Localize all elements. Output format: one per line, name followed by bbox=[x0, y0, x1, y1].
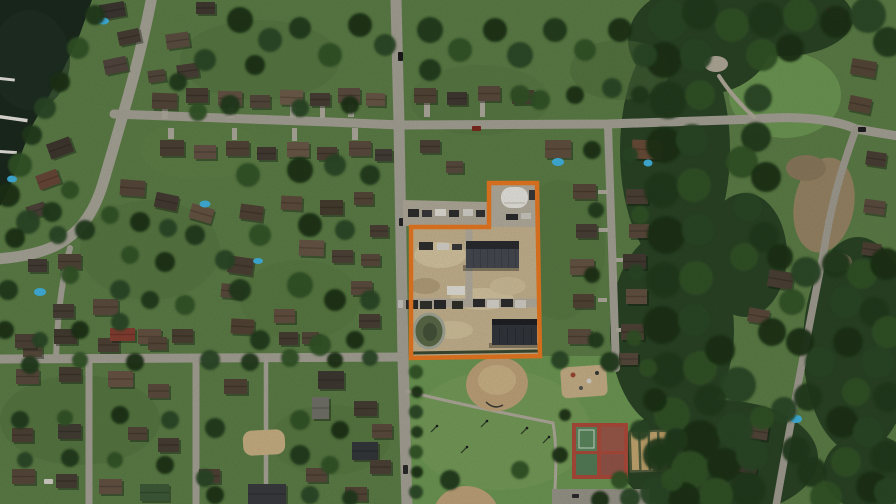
satellite-map-canvas bbox=[0, 0, 896, 504]
photo-grain bbox=[0, 0, 896, 504]
satellite-image bbox=[0, 0, 896, 504]
